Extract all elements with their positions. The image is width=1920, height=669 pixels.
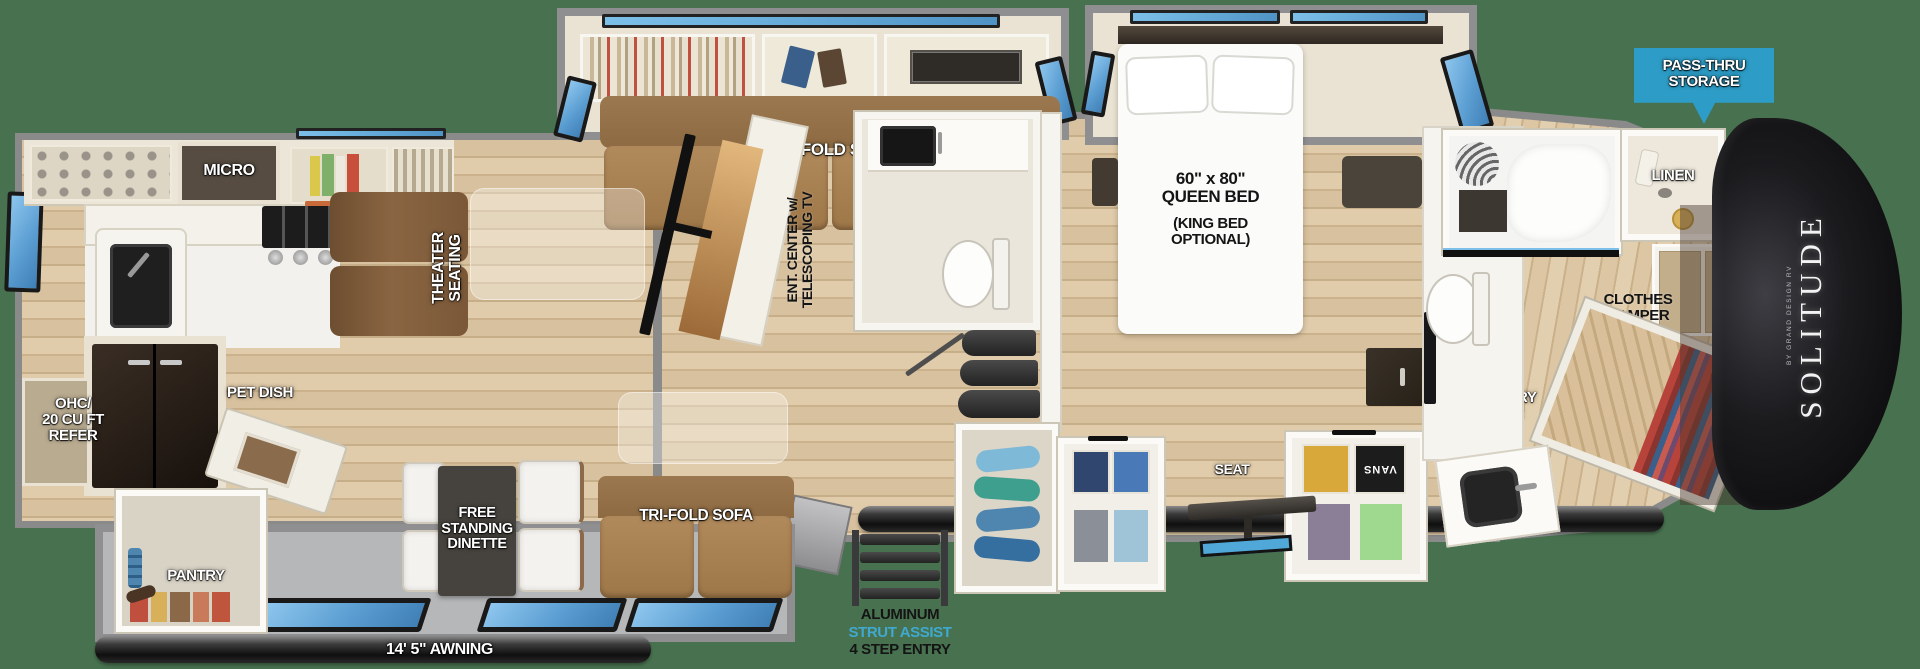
sneaker <box>973 476 1040 503</box>
label-free-standing-dinette: FREE STANDING DINETTE <box>427 506 527 553</box>
overhead-cabinet-books <box>580 34 755 102</box>
tri-fold-sofa-bottom <box>598 476 794 600</box>
master-toilet-tank <box>1472 272 1490 346</box>
label-micro: MICRO <box>178 162 280 179</box>
half-bath-toilet-tank <box>992 238 1010 310</box>
label-theater-seating: THEATER SEATING <box>427 198 467 338</box>
shower-head <box>1455 142 1499 186</box>
stair-step <box>960 360 1038 386</box>
folded-shirt <box>1074 510 1108 562</box>
slide-window-sofa-left <box>476 598 627 632</box>
half-bath-faucet <box>938 132 942 154</box>
label-linen: LINEN <box>1628 168 1718 184</box>
bed-pillow-left <box>1125 55 1209 116</box>
poster-card <box>1302 444 1350 494</box>
knob <box>268 250 283 265</box>
sofa-bottom-seat-left <box>600 516 694 598</box>
shower-pan <box>1507 144 1611 242</box>
brand-name: SOLITUDE <box>1793 211 1829 419</box>
half-bath-sink <box>880 126 936 166</box>
nightstand-left <box>1092 158 1118 206</box>
bed-slide-window-left <box>1130 10 1280 24</box>
poster-card <box>1112 450 1150 494</box>
sneaker <box>975 505 1041 532</box>
label-pantry: PANTRY <box>150 568 242 584</box>
pantry-bottles <box>128 548 142 588</box>
dinette-chair <box>518 460 584 524</box>
label-queen-bed: 60" x 80" QUEEN BED <box>1118 170 1303 207</box>
fridge-handle-right <box>160 360 182 365</box>
shower-glass <box>1443 250 1619 257</box>
cookbook-red <box>347 154 359 196</box>
cookbook-green <box>322 154 334 196</box>
folded-shirt <box>1360 504 1402 560</box>
half-bath-toilet-bowl <box>942 240 994 308</box>
cookbook-yellow <box>310 156 320 196</box>
dinette-chair <box>518 528 584 592</box>
entry-step <box>860 534 940 545</box>
label-awning-14ft: 14' 5" AWNING <box>322 641 557 658</box>
linen-item-dish2 <box>1658 188 1672 198</box>
bedroom-dresser <box>1118 26 1443 44</box>
pantry-item <box>151 592 167 622</box>
label-tri-fold-sofa-bottom: TRI-FOLD SOFA <box>600 508 792 525</box>
sofa-bottom-seat-right <box>698 516 792 598</box>
knob <box>293 250 308 265</box>
accessory-drawer-handle <box>1400 368 1405 386</box>
slide-window-sofa-right <box>624 598 783 632</box>
master-bath-sink <box>1458 465 1523 529</box>
shower <box>1443 130 1621 254</box>
fridge-handle-left <box>128 360 150 365</box>
pantry-item <box>193 592 209 622</box>
wardrobe-left <box>1058 438 1164 590</box>
cabinet-glassware <box>30 145 172 201</box>
handle <box>1332 430 1376 435</box>
brand-block: BY GRAND DESIGN RV SOLITUDE <box>1732 220 1882 410</box>
rear-window <box>4 191 43 292</box>
slide-window-dinette <box>252 598 431 632</box>
label-entry-aluminum: ALUMINUM <box>835 606 965 624</box>
step-rail-left <box>852 530 859 606</box>
step-rail-right <box>941 530 948 606</box>
entry-step <box>860 552 940 563</box>
entry-step <box>860 570 940 581</box>
sofa-slide-window <box>602 14 1000 28</box>
decor-plaque <box>910 50 1022 84</box>
pantry-item <box>170 592 190 622</box>
pantry-item <box>212 592 230 622</box>
label-pet-dish: PET DISH <box>215 385 305 401</box>
entry-steps <box>852 530 948 606</box>
floorplan-canvas: TRI-FOLD SOFA 60" x 80" QUEEN BED (KING … <box>0 0 1920 669</box>
label-entry-strut-assist: STRUT ASSIST <box>835 624 965 642</box>
stair-step <box>962 330 1036 356</box>
stairs-to-bedroom <box>958 330 1040 422</box>
label-entry-4step: 4 STEP ENTRY <box>835 641 965 659</box>
shoe-cabinet <box>956 424 1058 592</box>
bed-bench-right <box>1342 156 1422 208</box>
fridge-divider <box>153 344 156 488</box>
label-ent-center: ENT. CENTER w/ TELESCOPING TV <box>780 175 820 325</box>
sneaker <box>973 535 1041 563</box>
sneaker <box>975 445 1041 474</box>
handle <box>1088 436 1128 441</box>
hallway-wall <box>1040 112 1062 432</box>
folded-shirt <box>1114 510 1148 562</box>
label-seat: SEAT <box>1192 462 1272 477</box>
poster-card-vans: VANS <box>1354 444 1406 494</box>
label-ohc-refer: OHC/ 20 CU FT REFER <box>18 396 128 445</box>
bed-pillow-right <box>1211 55 1295 116</box>
kitchen-top-window <box>296 128 446 139</box>
shower-seat <box>1459 190 1507 232</box>
cookbook-white <box>336 156 345 196</box>
poster-vans-text: VANS <box>1363 463 1397 475</box>
stair-step <box>958 390 1040 418</box>
poster-card <box>1072 450 1110 494</box>
label-pass-thru-storage: PASS-THRU STORAGE <box>1634 58 1774 90</box>
entry-step <box>860 588 940 599</box>
optional-table-ghost-living <box>470 188 645 300</box>
entry-callout: ALUMINUM STRUT ASSIST 4 STEP ENTRY <box>835 606 965 659</box>
label-king-bed-option: (KING BED OPTIONAL) <box>1118 216 1303 248</box>
master-bath-vanity <box>1434 444 1560 547</box>
folded-shirt <box>1308 504 1350 560</box>
optional-tv-ghost-bottom <box>618 392 788 464</box>
bed-slide-window-right <box>1290 10 1428 24</box>
brand-byline: BY GRAND DESIGN RV <box>1786 265 1793 365</box>
